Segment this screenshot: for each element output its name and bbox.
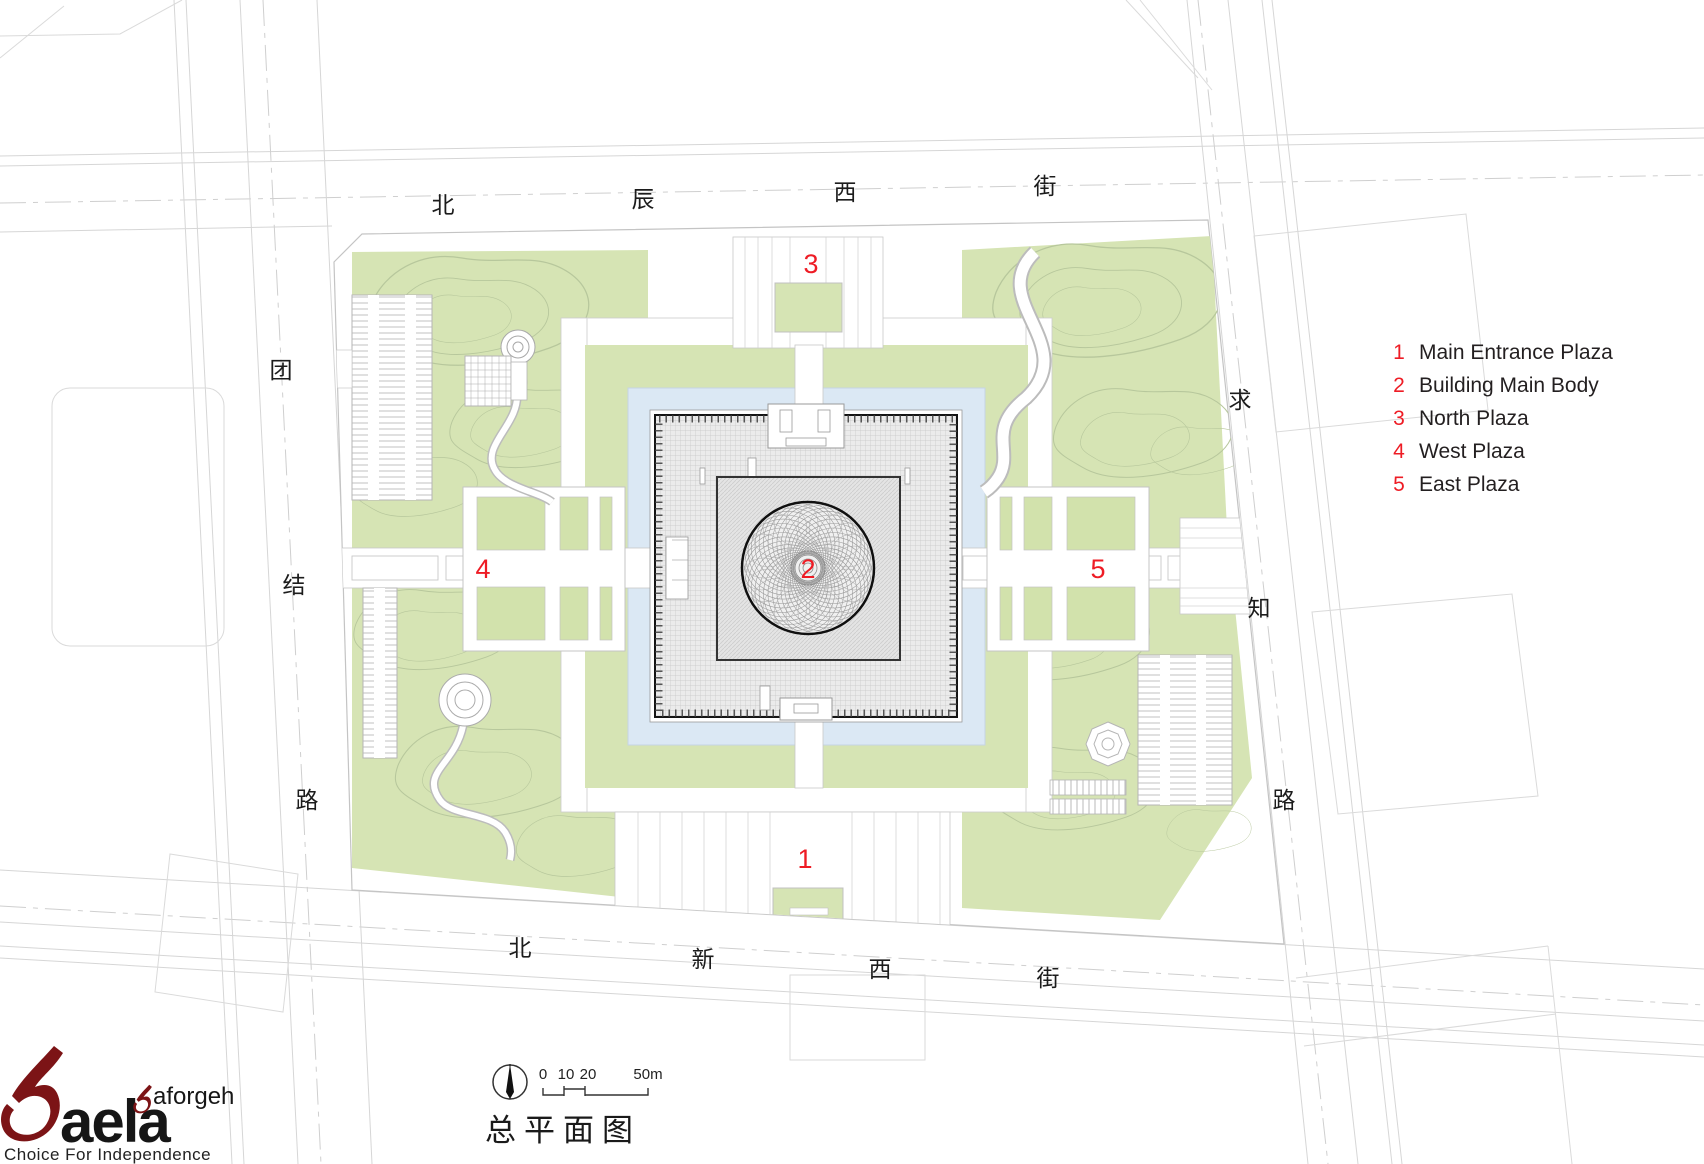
legend-num: 3 xyxy=(1393,407,1405,430)
legend-row: 2 Building Main Body xyxy=(1393,374,1599,397)
legend-num: 4 xyxy=(1393,440,1405,463)
marker-west-plaza: 4 xyxy=(475,554,490,584)
logo-subbrand: aforgeh xyxy=(153,1083,234,1110)
logo-tagline: Choice For Independence xyxy=(4,1145,211,1164)
logo-mark-icon xyxy=(1,1046,63,1141)
legend-row: 5 East Plaza xyxy=(1393,473,1520,496)
legend-label: Building Main Body xyxy=(1419,374,1599,397)
street-label-top: 北 辰 西 街 xyxy=(432,173,1057,218)
scale-bar: 0 10 20 50m xyxy=(539,1066,663,1096)
marker-main-entrance: 1 xyxy=(797,844,812,874)
street-char: 知 xyxy=(1248,595,1271,621)
legend-num: 1 xyxy=(1393,341,1405,364)
scale-label: 0 xyxy=(539,1066,547,1083)
street-char: 结 xyxy=(283,572,306,598)
legend-row: 1 Main Entrance Plaza xyxy=(1393,341,1613,364)
scale-label: 20 xyxy=(580,1066,597,1083)
street-char: 路 xyxy=(296,787,319,813)
street-char: 求 xyxy=(1229,387,1252,413)
parking-southwest xyxy=(363,588,397,758)
north-plaza-green xyxy=(775,283,842,332)
legend-row: 4 West Plaza xyxy=(1393,440,1525,463)
site-content xyxy=(336,236,1258,941)
scale-label: 50m xyxy=(633,1066,662,1083)
street-char: 街 xyxy=(1037,965,1060,991)
drawing-title: 总平面图 xyxy=(485,1113,641,1148)
north-entrance-structure xyxy=(768,404,844,448)
legend-label: Main Entrance Plaza xyxy=(1419,341,1613,364)
legend-label: East Plaza xyxy=(1419,473,1520,496)
octagon-plaza-southeast xyxy=(1086,722,1130,766)
legend-num: 5 xyxy=(1393,473,1405,496)
legend: 1 Main Entrance Plaza 2 Building Main Bo… xyxy=(1393,341,1613,496)
street-char: 北 xyxy=(509,935,532,961)
spiral-plaza-southwest xyxy=(439,674,491,726)
south-entrance-structure xyxy=(780,698,832,720)
trellis-pavilion xyxy=(465,356,527,406)
logo: aela aforgeh Choice For Independence xyxy=(1,1046,234,1164)
legend-row: 3 North Plaza xyxy=(1393,407,1529,430)
parking-southeast xyxy=(1138,655,1232,805)
street-left xyxy=(174,0,372,1164)
street-char: 西 xyxy=(834,179,857,205)
street-char: 新 xyxy=(692,946,715,972)
legend-num: 2 xyxy=(1393,374,1405,397)
street-char: 辰 xyxy=(632,186,655,212)
scale-bar-line xyxy=(543,1086,648,1096)
street-char: 团 xyxy=(270,357,293,383)
street-char: 路 xyxy=(1273,787,1296,813)
street-char: 西 xyxy=(869,956,892,982)
east-street-entry xyxy=(1180,518,1254,614)
scale-label: 10 xyxy=(558,1066,575,1083)
legend-label: West Plaza xyxy=(1419,440,1525,463)
street-char: 北 xyxy=(432,192,455,218)
marker-building: 2 xyxy=(800,554,815,584)
marker-east-plaza: 5 xyxy=(1090,554,1105,584)
south-bridge-path xyxy=(795,717,823,788)
street-char: 街 xyxy=(1034,173,1057,199)
marker-north-plaza: 3 xyxy=(803,249,818,279)
site-plan-page: 1 2 3 4 5 北 辰 西 街 北 新 西 街 团 结 路 求 知 路 xyxy=(0,0,1704,1164)
north-arrow-icon xyxy=(493,1064,527,1099)
site-plan-canvas: 1 2 3 4 5 北 辰 西 街 北 新 西 街 团 结 路 求 知 路 xyxy=(0,0,1704,1164)
legend-label: North Plaza xyxy=(1419,407,1529,430)
